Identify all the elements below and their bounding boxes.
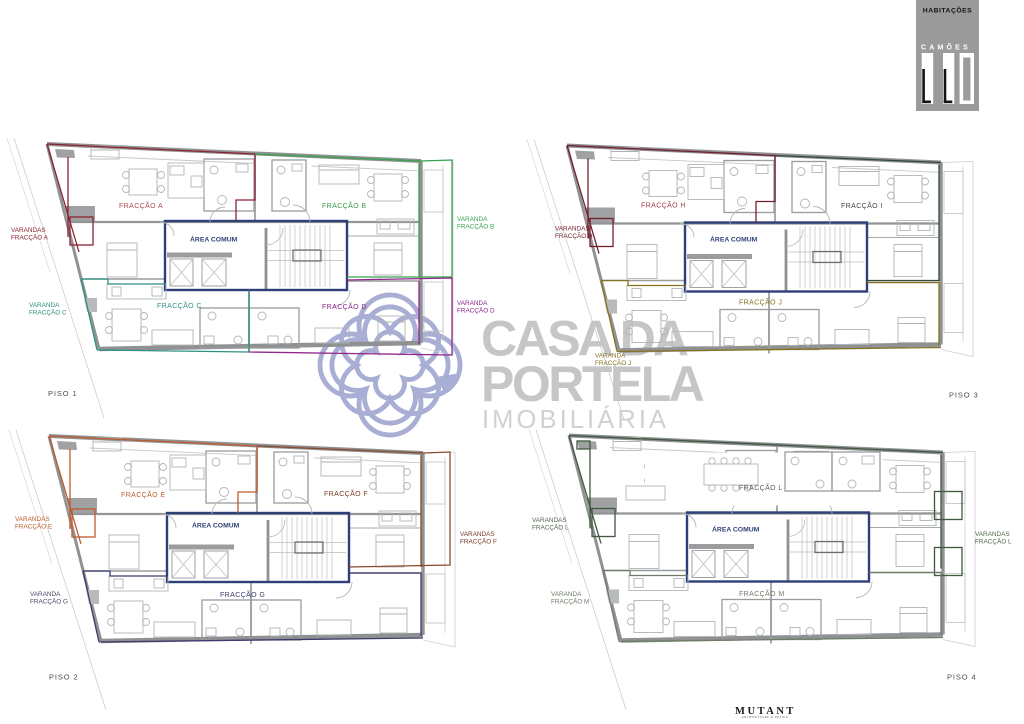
svg-text:VARANDA: VARANDA [29, 302, 60, 309]
svg-text:IMOBILIÁRIA: IMOBILIÁRIA [482, 405, 669, 434]
svg-text:FRACÇÃO L: FRACÇÃO L [532, 523, 569, 532]
svg-text:VARANDAS: VARANDAS [975, 531, 1010, 538]
svg-text:FRACÇÃO B: FRACÇÃO B [457, 222, 494, 231]
svg-text:FRACÇÃO I: FRACÇÃO I [841, 201, 883, 210]
svg-text:FRACÇÃO A: FRACÇÃO A [119, 201, 163, 210]
svg-text:FRACÇÃO E: FRACÇÃO E [121, 490, 165, 499]
svg-text:FRACÇÃO A: FRACÇÃO A [11, 233, 49, 242]
svg-text:FRACÇÃO M: FRACÇÃO M [739, 589, 785, 598]
svg-text:VARANDAS: VARANDAS [532, 517, 567, 524]
svg-text:VARANDAS: VARANDAS [555, 226, 590, 233]
svg-text:FRACÇÃO J: FRACÇÃO J [739, 298, 782, 307]
svg-text:VARANDAS: VARANDAS [460, 531, 495, 538]
svg-text:FRACÇÃO J: FRACÇÃO J [595, 358, 631, 367]
svg-text:HABITAÇÕES: HABITAÇÕES [923, 6, 972, 15]
svg-text:FRACÇÃO L: FRACÇÃO L [739, 483, 783, 492]
svg-text:ÁREA COMUM: ÁREA COMUM [712, 525, 760, 534]
svg-text:VARANDAS: VARANDAS [11, 227, 46, 234]
svg-text:PISO 1: PISO 1 [48, 389, 78, 398]
svg-text:FRACÇÃO D: FRACÇÃO D [322, 302, 367, 311]
svg-text:VARANDA: VARANDA [457, 300, 488, 307]
svg-text:PORTELA: PORTELA [481, 356, 704, 412]
svg-text:FRACÇÃO C: FRACÇÃO C [29, 308, 67, 317]
svg-text:FRACÇÃO G: FRACÇÃO G [30, 597, 68, 606]
svg-text:ÁREA COMUM: ÁREA COMUM [710, 235, 758, 244]
svg-text:PISO 2: PISO 2 [49, 673, 79, 682]
svg-text:VARANDA: VARANDA [30, 591, 61, 598]
svg-text:FRACÇÃO M: FRACÇÃO M [551, 597, 589, 606]
svg-text:FRACÇÃO G: FRACÇÃO G [220, 590, 265, 599]
svg-text:FRACÇÃO F: FRACÇÃO F [460, 537, 497, 546]
svg-text:FRACÇÃO F: FRACÇÃO F [324, 489, 368, 498]
svg-text:ARCHITECTURE & DESIGN: ARCHITECTURE & DESIGN [742, 716, 789, 719]
svg-text:VARANDA: VARANDA [595, 353, 626, 360]
svg-text:VARANDAS: VARANDAS [15, 516, 50, 523]
svg-text:VARANDA: VARANDA [551, 591, 582, 598]
svg-text:FRACÇÃO L: FRACÇÃO L [975, 537, 1012, 546]
svg-text:PISO 4: PISO 4 [947, 673, 977, 682]
svg-text:ÁREA COMUM: ÁREA COMUM [190, 235, 238, 244]
svg-text:FRACÇÃO B: FRACÇÃO B [322, 201, 366, 210]
svg-text:VARANDA: VARANDA [457, 216, 488, 223]
svg-text:PISO 3: PISO 3 [949, 391, 979, 400]
svg-text:FRACÇÃO E: FRACÇÃO E [15, 522, 52, 531]
svg-text:FRACÇÃO C: FRACÇÃO C [157, 301, 202, 310]
svg-text:FRACÇÃO H: FRACÇÃO H [555, 231, 593, 240]
svg-text:FRACÇÃO D: FRACÇÃO D [457, 306, 495, 315]
svg-text:FRACÇÃO H: FRACÇÃO H [641, 201, 686, 210]
svg-text:ÁREA COMUM: ÁREA COMUM [192, 521, 240, 530]
svg-text:CAMÕES: CAMÕES [921, 43, 971, 52]
